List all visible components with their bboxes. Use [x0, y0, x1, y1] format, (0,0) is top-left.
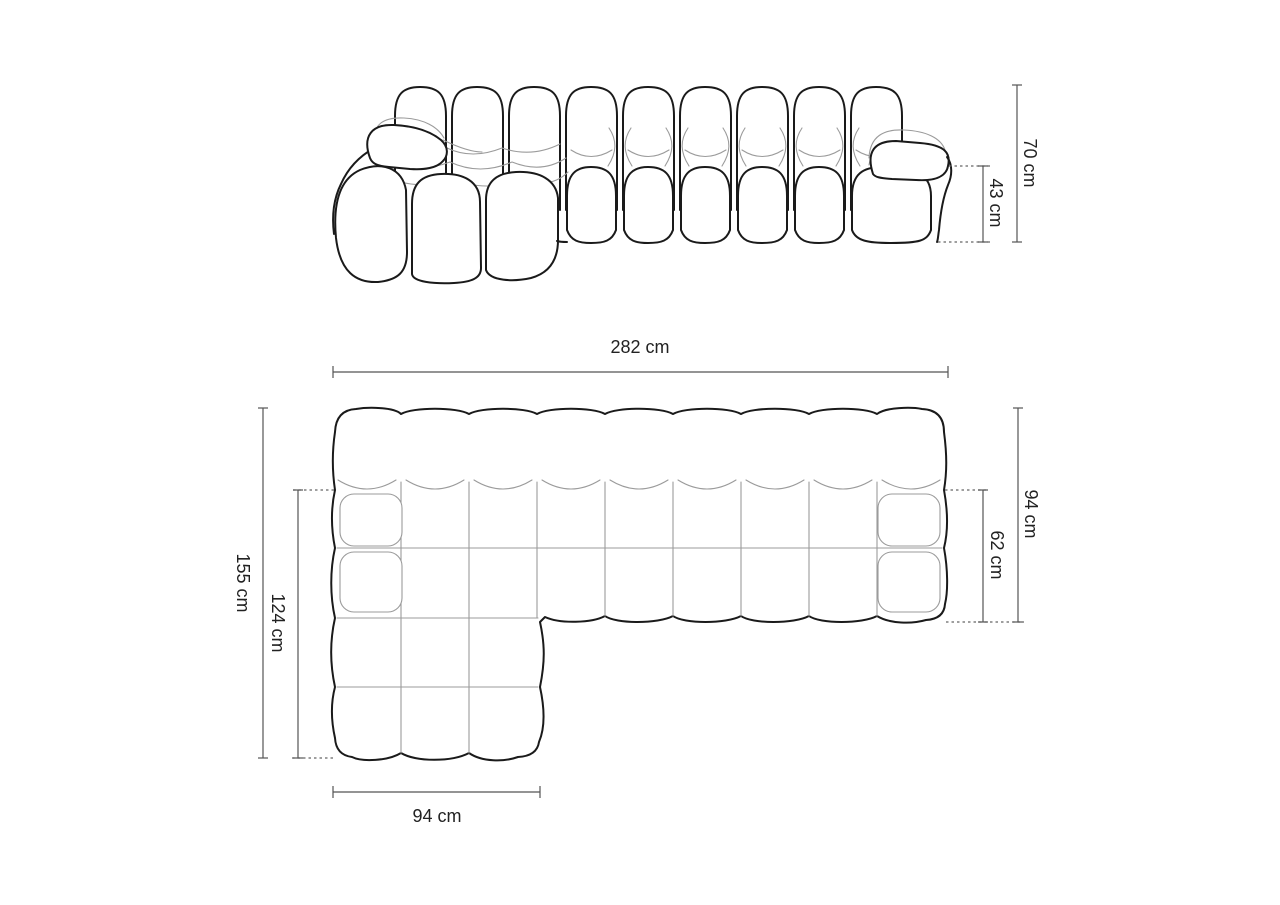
dimension-seat-height-label: 43 cm	[986, 178, 1006, 227]
right-armrest-pill	[871, 141, 949, 180]
dimension-total-height-label: 70 cm	[1020, 138, 1040, 187]
dimension-total-width: 282 cm	[333, 337, 948, 378]
plan-right-armrest-cushion-back	[878, 494, 940, 546]
dimension-chaise-width: 94 cm	[333, 786, 540, 826]
dimension-seat-height: 43 cm	[978, 166, 1006, 242]
dimension-chaise-total-length-label: 155 cm	[233, 553, 253, 612]
dimension-seat-depth-label: 62 cm	[987, 530, 1007, 579]
dimension-total-depth: 94 cm	[1013, 408, 1041, 622]
dimension-chaise-inner-length: 124 cm	[268, 490, 303, 758]
dimension-chaise-inner-length-label: 124 cm	[268, 593, 288, 652]
front-seat-cushions	[567, 167, 931, 243]
dimension-chaise-total-length: 155 cm	[233, 408, 268, 758]
plan-right-armrest-cushion-front	[878, 552, 940, 612]
top-plan-view: 282 cm 155 cm 124 cm 94 cm 6	[233, 337, 1041, 826]
plan-left-armrest-cushion-back	[340, 494, 402, 546]
dimension-total-width-label: 282 cm	[610, 337, 669, 357]
dimension-total-depth-label: 94 cm	[1021, 489, 1041, 538]
sofa-dimension-diagram: 70 cm 43 cm	[0, 0, 1280, 905]
dimension-total-height: 70 cm	[1012, 85, 1040, 242]
left-armrest-pill	[367, 125, 447, 169]
plan-left-armrest-cushion-front	[340, 552, 402, 612]
dimension-chaise-width-label: 94 cm	[412, 806, 461, 826]
diagram-page: 70 cm 43 cm	[0, 0, 1280, 905]
front-elevation-view: 70 cm 43 cm	[333, 85, 1040, 283]
front-chaise-cushions	[335, 166, 567, 283]
plan-sofa-outline	[331, 408, 947, 761]
dimension-seat-depth: 62 cm	[978, 490, 1007, 622]
